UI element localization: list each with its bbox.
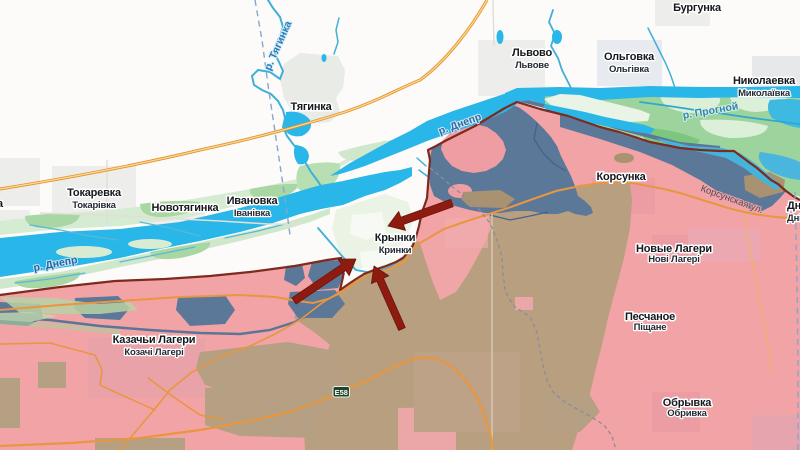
- svg-text:Ольговка: Ольговка: [604, 51, 655, 63]
- svg-text:Обривка: Обривка: [667, 408, 707, 419]
- svg-text:Кринки: Кринки: [379, 245, 412, 256]
- svg-text:E58: E58: [335, 388, 348, 397]
- svg-text:Крынки: Крынки: [375, 232, 416, 244]
- svg-text:Ольгівка: Ольгівка: [609, 64, 650, 75]
- svg-text:Казачьи Лагери: Казачьи Лагери: [113, 334, 196, 346]
- svg-text:Дніпряни: Дніпряни: [787, 213, 800, 224]
- svg-text:Ивановка: Ивановка: [227, 195, 279, 207]
- svg-text:Піщане: Піщане: [634, 322, 667, 333]
- svg-text:Козачі Лагері: Козачі Лагері: [124, 347, 183, 358]
- svg-text:Николаевка: Николаевка: [733, 75, 796, 87]
- svg-text:Тягинка: Тягинка: [290, 101, 332, 113]
- svg-text:Іванівка: Іванівка: [234, 208, 271, 219]
- svg-text:Днепряны: Днепряны: [787, 200, 800, 212]
- svg-text:Токарівка: Токарівка: [72, 200, 116, 211]
- svg-text:Нові Лагері: Нові Лагері: [648, 254, 699, 265]
- svg-text:Бургунка: Бургунка: [673, 2, 722, 14]
- svg-text:Корсунка: Корсунка: [596, 171, 646, 183]
- svg-text:Львово: Львово: [512, 47, 552, 59]
- svg-text:Токаревка: Токаревка: [67, 187, 122, 199]
- svg-text:Миколаївка: Миколаївка: [738, 88, 791, 99]
- svg-text:Львове: Львове: [515, 60, 549, 71]
- svg-text:Новотягинка: Новотягинка: [152, 202, 220, 214]
